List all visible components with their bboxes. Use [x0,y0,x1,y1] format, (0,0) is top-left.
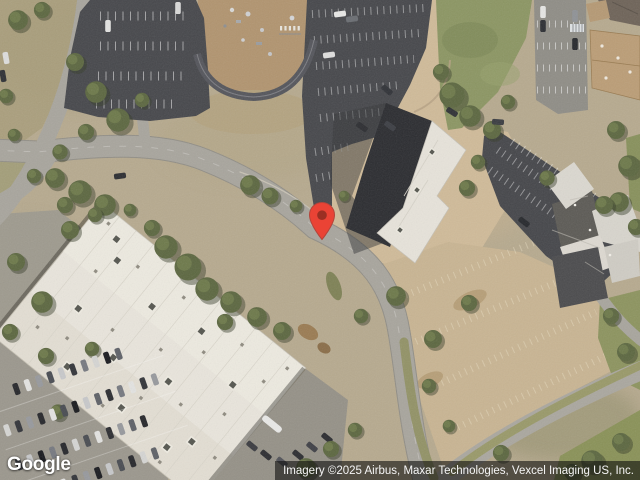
pin-dot [317,210,327,220]
map-pin[interactable] [308,201,336,241]
pin-body [310,203,335,240]
attribution-bar: Imagery ©2025 Airbus, Maxar Technologies… [275,461,640,480]
map-viewport[interactable]: Google Imagery ©2025 Airbus, Maxar Techn… [0,0,640,480]
attribution-text: Imagery ©2025 Airbus, Maxar Technologies… [283,465,634,477]
google-logo[interactable]: Google [7,454,71,476]
